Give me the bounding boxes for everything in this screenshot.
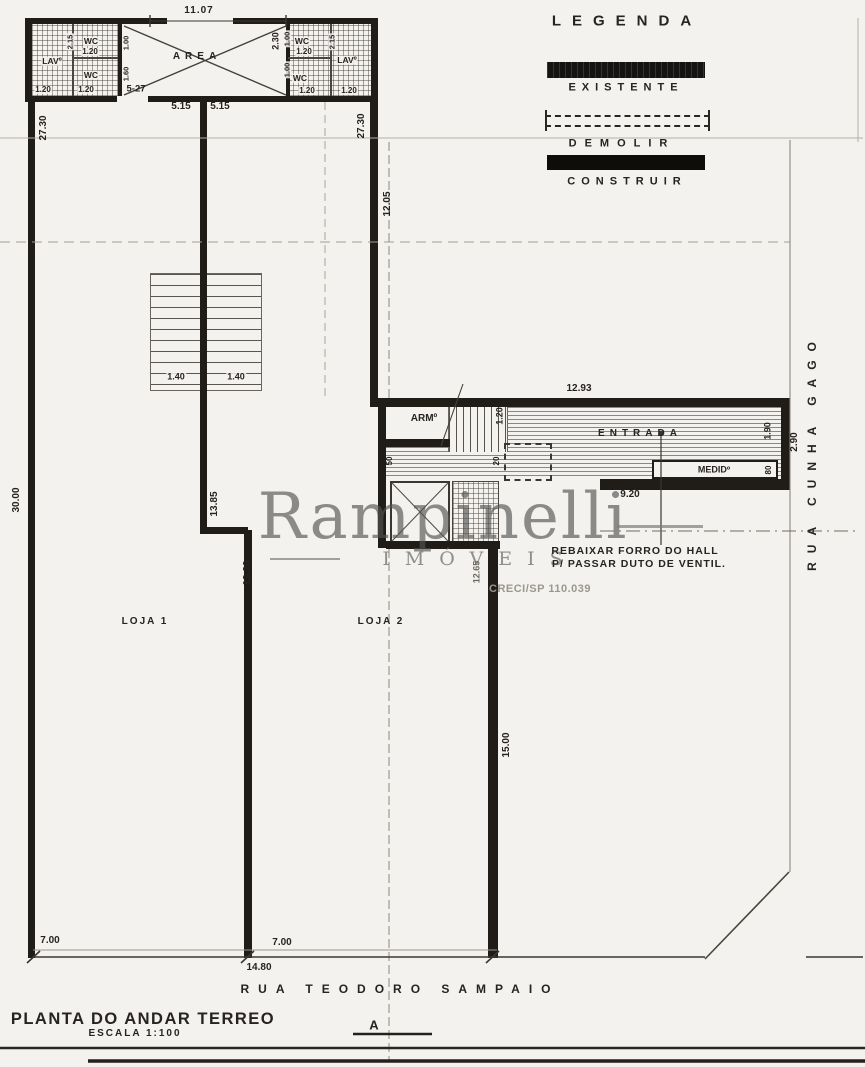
dim-stair-hall: 1.20 xyxy=(496,407,505,425)
room-label-medidor: MEDIDº xyxy=(698,466,730,475)
dim-half-b: 5.15 xyxy=(210,102,229,112)
demolir-end-tick-left xyxy=(545,110,547,131)
demolir-dash-1 xyxy=(545,115,710,117)
section-marker: A xyxy=(369,1019,378,1032)
stair-direction-line xyxy=(441,384,463,446)
room-label-arm: ARMº xyxy=(411,414,437,424)
dim-left-bath-v3: 1.60 xyxy=(122,66,130,83)
dim-left-bath-b2: 1.20 xyxy=(77,86,95,94)
dim-total-width: 11.07 xyxy=(184,6,213,16)
note-line-1: REBAIXAR FORRO DO HALL xyxy=(551,546,718,557)
legend-title: LEGENDA xyxy=(552,14,702,29)
dim-80: 80 xyxy=(765,466,773,475)
dim-right-bath-b1: 1.20 xyxy=(298,87,316,95)
legend-label-demolir: DEMOLIR xyxy=(569,139,676,150)
demolir-end-tick-right xyxy=(708,110,710,131)
dim-left-bath-b1: 1.20 xyxy=(34,86,52,94)
dim-2-30: 2.30 xyxy=(272,32,281,50)
dim-13-20: 13.20 xyxy=(243,560,253,585)
dim-entry-width: 9.20 xyxy=(620,490,639,500)
dim-2-90: 2.90 xyxy=(790,432,800,451)
dim-13-85: 13.85 xyxy=(210,491,220,516)
dim-right-bath-v1: 1.00 xyxy=(283,31,291,48)
dim-stair-flight-a: 1.40 xyxy=(166,373,186,382)
legend-swatch-existente xyxy=(547,62,705,78)
room-label-wc-right-bottom: WC xyxy=(292,74,308,83)
room-label-wc-left-bottom: WC xyxy=(83,71,99,80)
dim-20: 20 xyxy=(493,457,501,466)
dim-front-b: 7.00 xyxy=(272,938,291,948)
dim-half-a: 5.15 xyxy=(171,102,190,112)
watermark-dash-right xyxy=(617,525,703,528)
corner-chamfer xyxy=(705,872,789,959)
dim-left-bath-v1: 2.15 xyxy=(66,34,74,51)
legend-label-existente: EXISTENTE xyxy=(568,83,683,94)
dim-left-total: 30.00 xyxy=(12,487,22,512)
room-label-area: AREA xyxy=(173,52,221,62)
dim-front-a: 7.00 xyxy=(40,936,59,946)
dim-depth-mid: 27.30 xyxy=(357,113,367,138)
demolir-dash-2 xyxy=(545,125,710,127)
street-label-bottom: RUA TEODORO SAMPAIO xyxy=(240,983,559,995)
room-label-wc-right-top: WC xyxy=(294,37,310,46)
legend-swatch-construir xyxy=(547,155,705,170)
dim-50: 50 xyxy=(386,457,394,466)
note-line-2: P/ PASSAR DUTO DE VENTIL. xyxy=(552,559,726,570)
room-label-loja1: LOJA 1 xyxy=(122,617,169,627)
dim-wc-left-top: 1.20 xyxy=(81,48,99,56)
plan-title: PLANTA DO ANDAR TERREO xyxy=(11,1011,275,1028)
dim-right-bath-v3: 1.00 xyxy=(283,62,291,79)
room-label-wc-left-top: WC xyxy=(83,37,99,46)
watermark-dash-left xyxy=(270,558,340,560)
dim-inner-depth: 12.05 xyxy=(383,191,393,216)
dim-wc-right-top: 1.20 xyxy=(295,48,313,56)
dim-hall-width: 12.93 xyxy=(566,384,591,394)
dim-right-bath-b2: 1.20 xyxy=(340,87,358,95)
dim-15-00: 15.00 xyxy=(502,732,512,757)
plan-scale: ESCALA 1:100 xyxy=(88,1029,181,1039)
dim-left-bath-v2: 1.00 xyxy=(122,35,130,52)
room-label-loja2: LOJA 2 xyxy=(358,617,405,627)
dim-stair-flight-b: 1.40 xyxy=(226,373,246,382)
dim-depth-left: 27.30 xyxy=(39,115,49,140)
dim-right-bath-v2: 2.15 xyxy=(328,34,336,51)
dim-area-side: 5-27 xyxy=(126,84,145,94)
room-label-entrada: ENTRADA xyxy=(598,429,682,439)
dim-1-90: 1.90 xyxy=(764,422,773,440)
dim-12-65: 12.65 xyxy=(473,561,482,584)
floor-plan-sheet: LEGENDA EXISTENTE DEMOLIR CONSTRUIR Ramp… xyxy=(0,0,865,1067)
watermark-logo: Rampinelli xyxy=(258,480,628,554)
room-label-lav-left: LAVº xyxy=(41,57,62,66)
legend-label-construir: CONSTRUIR xyxy=(567,177,686,188)
watermark-creci: CRECI/SP 110.039 xyxy=(489,583,591,595)
dim-front-total: 14.80 xyxy=(246,963,271,973)
street-label-right: RUA CUNHA GAGO xyxy=(806,333,818,571)
room-label-lav-right: LAVº xyxy=(336,56,357,65)
legend-swatch-demolir xyxy=(545,112,710,134)
